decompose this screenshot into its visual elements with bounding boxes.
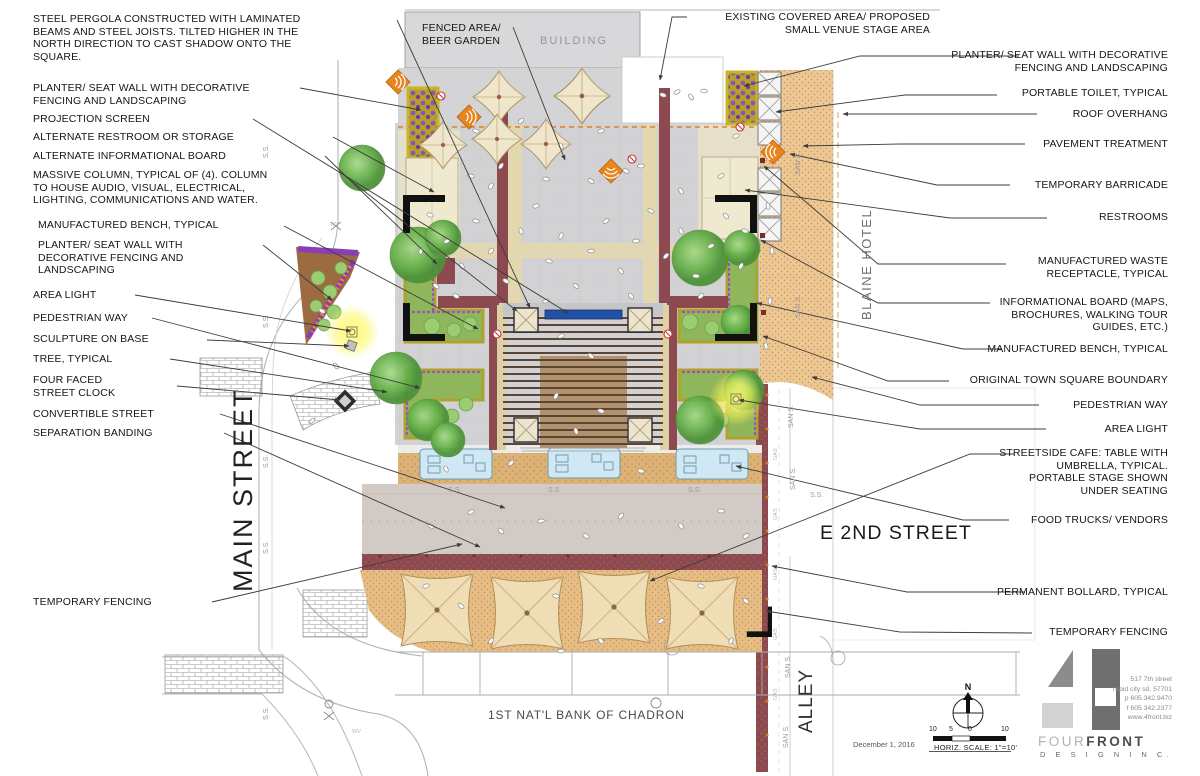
callout-convertible-street: CONVERTIBLE STREET [33,408,154,421]
callout-roof-overhang: ROOF OVERHANG [1073,108,1168,121]
callout-informational-board: INFORMATIONAL BOARD (MAPS, BROCHURES, WA… [1000,296,1168,334]
site-plan-sheet: S.S. S.S. S.S. S.S. S.S. S.S. S.S. S.S. … [0,0,1200,776]
callout-manufactured-bench-right: MANUFACTURED BENCH, TYPICAL [987,343,1168,356]
bank-label: 1ST NAT'L BANK OF CHADRON [488,708,685,722]
ss-label: S.S. [448,487,461,494]
ss-label: S.S. [263,541,270,554]
gas-label: GAS [773,568,779,580]
ss-label: S.S. [548,487,561,494]
wv-label: WV [330,222,339,228]
e-2nd-street-label: E 2ND STREET [820,522,972,545]
sheet-date: December 1, 2016 [853,740,915,749]
callout-restrooms: RESTROOMS [1099,211,1168,224]
logo-square [1042,703,1073,728]
logo-address: 517 7th street rapid city sd. 57701 p 60… [1100,675,1172,723]
person-figure [717,509,724,513]
callout-waste-receptacle: MANUFACTURED WASTE RECEPTACLE, TYPICAL [1038,255,1168,280]
scale-label: HORIZ. SCALE: 1"=10' [934,743,1017,752]
north-arrow: N [953,682,983,728]
callout-portable-toilet: PORTABLE TOILET, TYPICAL [1022,87,1168,100]
person-figure [700,89,707,93]
callout-temporary-fencing-right: TEMPORARY FENCING [1049,626,1168,639]
gas-label: GAS [773,448,779,460]
scale-tick: 10 [1001,726,1009,733]
logo-triangle [1048,650,1073,687]
callout-planter-seat-wall-mid: PLANTER/ SEAT WALL WITH DECORATIVE FENCI… [38,239,183,277]
wv-label: WV [352,729,361,735]
north-letter: N [965,682,972,692]
alley-label: ALLEY [796,669,818,733]
callout-original-boundary: ORIGINAL TOWN SQUARE BOUNDARY [970,374,1168,387]
ss-label: S.S. [263,145,270,158]
callout-alternate-restroom: ALTERNATE RESTROOM OR STORAGE [33,131,234,144]
ss-label: S.S. [688,487,701,494]
scale-tick: 5 [949,726,953,733]
callout-projection-screen: PROJECTION SCREEN [33,113,150,126]
callout-planter-seat-wall-top: PLANTER/ SEAT WALL WITH DECORATIVE FENCI… [33,82,250,107]
callout-manufactured-bench: MANUFACTURED BENCH, TYPICAL [38,219,219,232]
callout-tree-typical: TREE, TYPICAL [33,353,112,366]
callout-food-trucks: FOOD TRUCKS/ VENDORS [1031,514,1168,527]
person-figure [692,274,699,278]
callout-massive-column: MASSIVE COLUMN, TYPICAL OF (4). COLUMN T… [33,169,267,207]
ss-label: S.S. [810,492,823,499]
person-figure [770,247,774,254]
gas-label: GAS [773,688,779,700]
site-plan-drawing: S.S. S.S. S.S. S.S. S.S. S.S. S.S. S.S. … [0,0,1200,776]
san-s-label: SAN S. [795,295,802,318]
person-figure [588,249,595,253]
logo-wordmark: FOURFRONT [1038,734,1145,749]
person-figure [558,649,565,653]
callout-existing-covered: EXISTING COVERED AREA/ PROPOSED SMALL VE… [725,11,930,36]
callout-planter-seat-wall-right: PLANTER/ SEAT WALL WITH DECORATIVE FENCI… [951,49,1168,74]
callout-sculpture-on-base: SCULPTURE ON BASE [33,333,149,346]
scale-tick: 0 [968,726,972,733]
ss-label: S.S. [263,455,270,468]
bank-building [395,652,1020,695]
callout-pavement-treatment: PAVEMENT TREATMENT [1043,138,1168,151]
gas-label: GAS [773,508,779,520]
callout-steel-pergola: STEEL PERGOLA CONSTRUCTED WITH LAMINATED… [33,13,300,63]
san-s-label: SAN S. [783,725,790,748]
callout-area-light: AREA LIGHT [33,289,96,302]
callout-street-clock: FOUR FACED STREET CLOCK [33,374,115,399]
scale-tick: 10 [929,726,937,733]
logo-design-inc: D E S I G N I N C. [1040,750,1172,759]
callout-temporary-barricade: TEMPORARY BARRICADE [1035,179,1168,192]
callout-streetside-cafe: STREETSIDE CAFE: TABLE WITH UMBRELLA, TY… [999,447,1168,497]
callout-fenced-area: FENCED AREA/ BEER GARDEN [422,22,501,47]
san-s-label: SAN S. [788,405,795,428]
person-figure [768,297,772,304]
blaine-hotel-label: BLAINE HOTEL [859,209,874,320]
ss-label: S.S. [263,315,270,328]
callout-temporary-fencing-left: TEMPORARY FENCING [33,596,152,609]
callout-permanent-bollard: PERMANENT BOLLARD, TYPICAL [997,586,1168,599]
callout-pedestrian-way-right: PEDESTRIAN WAY [1073,399,1168,412]
callout-pedestrian-way: PEDESTRIAN WAY [33,312,128,325]
building-label: BUILDING [540,35,608,47]
callout-area-light-right: AREA LIGHT [1105,423,1168,436]
san-s-label: SAN S. [795,152,802,175]
logo-front: FRONT [1086,734,1145,749]
main-street-label: MAIN STREET [228,388,259,592]
ss-label: S.S. [263,707,270,720]
callout-alternate-info-board: ALTERNATE INFORMATIONAL BOARD [33,150,226,163]
person-figure [637,164,644,168]
san-s-label: SAN S. [790,467,797,490]
callout-separation-banding: SEPARATION BANDING [33,427,153,440]
logo-four: FOUR [1038,734,1086,749]
san-s-label: SAN S. [785,655,792,678]
gas-label: GAS [773,628,779,640]
